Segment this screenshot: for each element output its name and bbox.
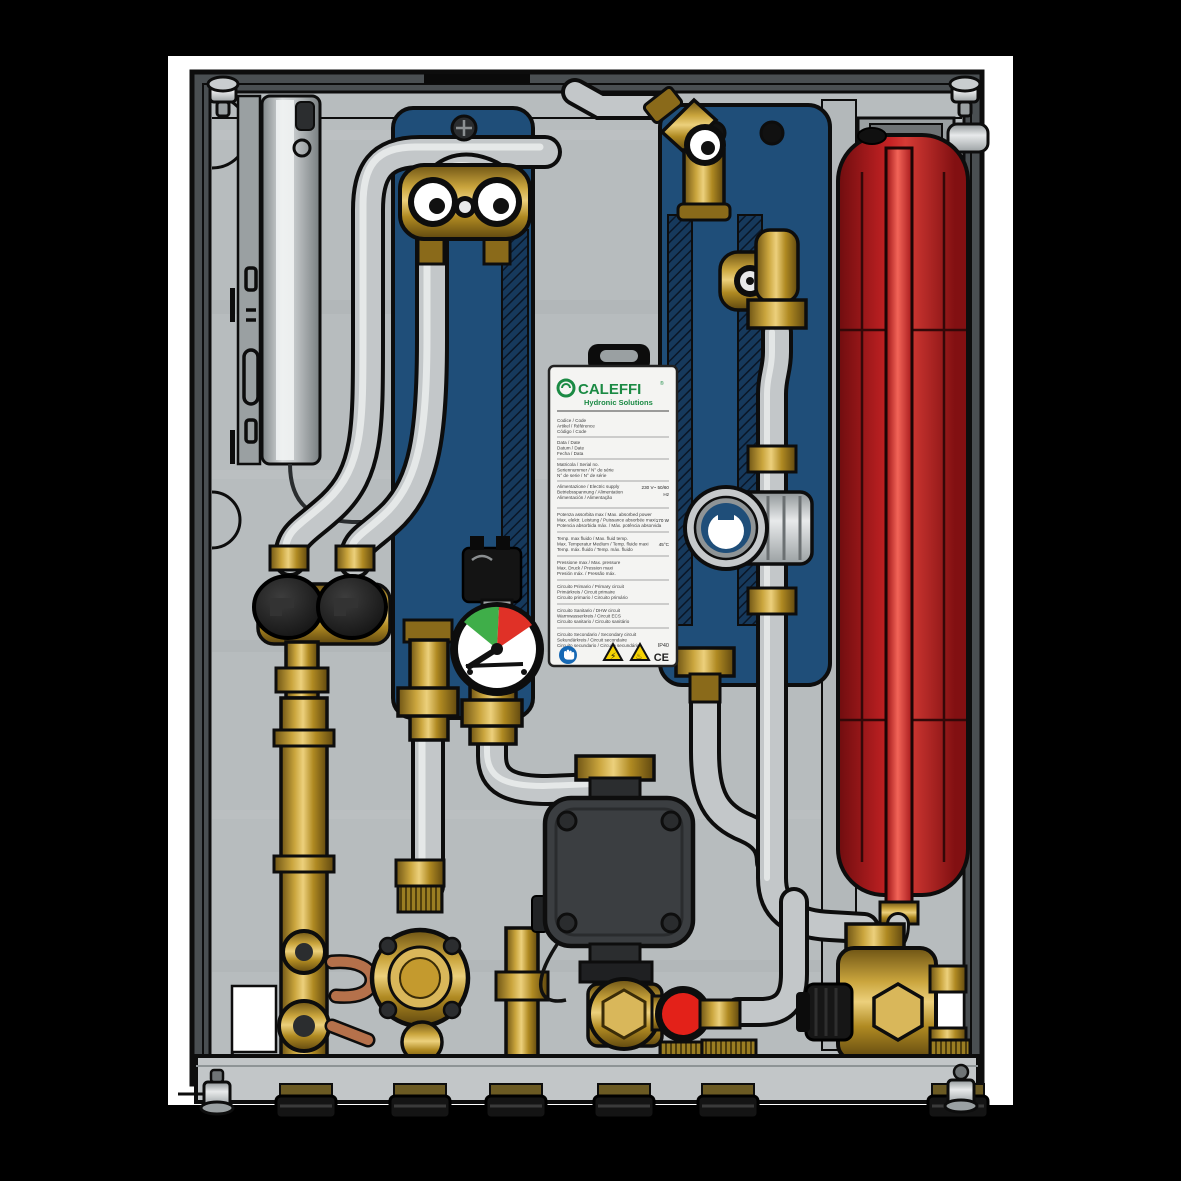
bottom-port bbox=[594, 1084, 654, 1118]
label-line: Potenza assorbita max / Max. absorbed po… bbox=[557, 512, 652, 517]
illustration-canvas: CALEFFI ® Hydronic Solutions Codice / Co… bbox=[0, 0, 1181, 1181]
label-value: 170 W bbox=[656, 518, 670, 523]
bottom-port bbox=[390, 1084, 450, 1118]
bottom-port bbox=[486, 1084, 546, 1118]
compression-nut bbox=[336, 546, 374, 570]
port-center bbox=[701, 141, 715, 155]
label-block-9: Circuito Sanitario / DHW circuit Warmwas… bbox=[557, 608, 630, 624]
compression-nut bbox=[270, 546, 308, 570]
pipe-run-elbow-top-right bbox=[575, 92, 652, 106]
gauge-hub bbox=[491, 643, 503, 655]
label-line: Código / Code bbox=[557, 429, 587, 434]
label-line: Presión máx. / Pressão máx. bbox=[557, 571, 616, 576]
valve-top-nut bbox=[396, 860, 444, 886]
label-line: Primärkreis / Circuit primaire bbox=[557, 590, 615, 595]
label-line: Alimentación / Alimentação bbox=[557, 495, 613, 500]
brand-name: CALEFFI bbox=[578, 381, 641, 398]
valve-hex-face bbox=[874, 984, 922, 1040]
fill-valve-right-nut bbox=[700, 1000, 740, 1028]
label-line: Circuito Secondario / Secondary circuit bbox=[557, 632, 637, 637]
label-value: 45°C bbox=[659, 542, 670, 547]
label-block-7: Pressione max / Max. pressure Max. Druck… bbox=[557, 560, 621, 576]
brand-tagline: Hydronic Solutions bbox=[584, 398, 653, 407]
mid-boss-dot bbox=[746, 277, 754, 285]
label-value: 230 V~ 50/60 bbox=[642, 485, 670, 490]
ce-mark: CE bbox=[654, 652, 669, 664]
label-line: Pressione max / Max. pressure bbox=[557, 560, 621, 565]
label-hanger-slot bbox=[600, 350, 638, 362]
label-line: Artikel / Référence bbox=[557, 424, 595, 429]
pump-screw bbox=[662, 812, 680, 830]
pump-screw bbox=[558, 812, 576, 830]
label-line: Betriebsspannung / Alimentation bbox=[557, 490, 623, 495]
label-line: Warmwasserkreis / Circuit ECS bbox=[557, 614, 621, 619]
expansion-vessel bbox=[838, 118, 988, 948]
label-line: Datum / Date bbox=[557, 446, 585, 451]
controller-tick bbox=[230, 430, 235, 464]
temperature-gauge bbox=[454, 606, 540, 692]
hot-surface-glyph: ♨ bbox=[636, 652, 643, 661]
electric-warning-glyph: ⚡ bbox=[610, 651, 616, 661]
label-line: N° de serie / N° de série bbox=[557, 473, 607, 478]
pipe-ring bbox=[274, 730, 334, 746]
bottom-port bbox=[276, 1084, 336, 1118]
stub-cylinder bbox=[756, 230, 798, 302]
gauge-tick bbox=[521, 669, 527, 675]
label-line: Seriennummer / N° de série bbox=[557, 468, 614, 473]
gauge-tee-hex bbox=[462, 700, 522, 726]
center-boss-face bbox=[459, 201, 471, 213]
compression-hex-lower bbox=[748, 588, 796, 614]
pump-screw bbox=[558, 914, 576, 932]
fill-valve-red-knob bbox=[662, 993, 704, 1035]
heat-interface-unit-drawing: CALEFFI ® Hydronic Solutions Codice / Co… bbox=[0, 0, 1181, 1181]
side-port-center bbox=[293, 1015, 315, 1037]
controller-tick bbox=[230, 288, 235, 322]
gauge-tick bbox=[467, 669, 473, 675]
stub-hex-nut bbox=[748, 300, 806, 328]
port-center bbox=[429, 198, 445, 214]
actuator bbox=[685, 487, 812, 569]
elbow-ring bbox=[678, 204, 730, 220]
vessel-valve-cap bbox=[858, 128, 886, 144]
knurled-ring bbox=[398, 886, 442, 912]
label-line: Circuito Primario / Primary circuit bbox=[557, 584, 625, 589]
hex-nut bbox=[676, 648, 734, 676]
actuator-knob-notch bbox=[718, 510, 734, 520]
outlet-upper bbox=[930, 966, 966, 992]
label-line: Alimentazione / Electric supply bbox=[557, 484, 620, 489]
tee-hex-face bbox=[603, 990, 645, 1038]
pipe-ring bbox=[274, 856, 334, 872]
valve-screw bbox=[444, 1002, 460, 1018]
label-value: Hz bbox=[663, 492, 669, 497]
pump-inlet-nut bbox=[576, 756, 654, 780]
label-line: Fecha / Data bbox=[557, 451, 584, 456]
valve-screw bbox=[444, 938, 460, 954]
label-line: Matricola / Serial no. bbox=[557, 462, 599, 467]
rating-label: CALEFFI ® Hydronic Solutions Codice / Co… bbox=[549, 344, 677, 666]
vessel-center-pipe bbox=[886, 148, 912, 906]
side-port-center bbox=[295, 943, 313, 961]
label-line: Max. Druck / Pression maxi bbox=[557, 566, 613, 571]
label-line: Temp. máx. fluido / Temp. máx. fluido bbox=[557, 547, 633, 552]
frame-top-notch bbox=[424, 74, 530, 84]
controller-cap-detail bbox=[296, 102, 314, 130]
label-line: Data / Date bbox=[557, 440, 581, 445]
label-line: Sekundärkreis / Circuit secondaire bbox=[557, 638, 627, 643]
label-line: Potencia absorbida máx. / Máx. potência … bbox=[557, 523, 662, 528]
label-line: Max. Temperatur Medium / Temp. fluide ma… bbox=[557, 542, 648, 547]
valve-screw bbox=[380, 938, 396, 954]
valve-screw bbox=[380, 1002, 396, 1018]
port-center bbox=[493, 198, 509, 214]
brand-mark: ® bbox=[660, 380, 664, 387]
stub bbox=[690, 674, 720, 702]
label-line: Max. elektr. Leistung / Puissance absorb… bbox=[557, 518, 656, 523]
knob-end-cap bbox=[796, 992, 810, 1032]
panel-cutout-left bbox=[232, 986, 276, 1052]
hx-right-screw-2 bbox=[761, 122, 783, 144]
label-line: Circuito primario / Circuito primário bbox=[557, 595, 628, 600]
ip-rating: IP40 bbox=[658, 643, 669, 649]
valve-face-inner bbox=[400, 958, 440, 998]
compression-hex-upper bbox=[748, 446, 796, 472]
label-line: Codice / Code bbox=[557, 418, 587, 423]
valve-hex bbox=[398, 688, 458, 716]
label-line: Circuito Sanitario / DHW circuit bbox=[557, 608, 621, 613]
bottom-port bbox=[698, 1084, 758, 1118]
controller-highlight bbox=[276, 100, 294, 460]
black-knurled-knob bbox=[806, 984, 852, 1040]
label-line: Temp. max fluido / Max. fluid temp. bbox=[557, 536, 628, 541]
pump-screw bbox=[662, 914, 680, 932]
hex-band bbox=[276, 668, 328, 692]
label-line: Circuito sanitario / Circuito sanitário bbox=[557, 619, 630, 624]
